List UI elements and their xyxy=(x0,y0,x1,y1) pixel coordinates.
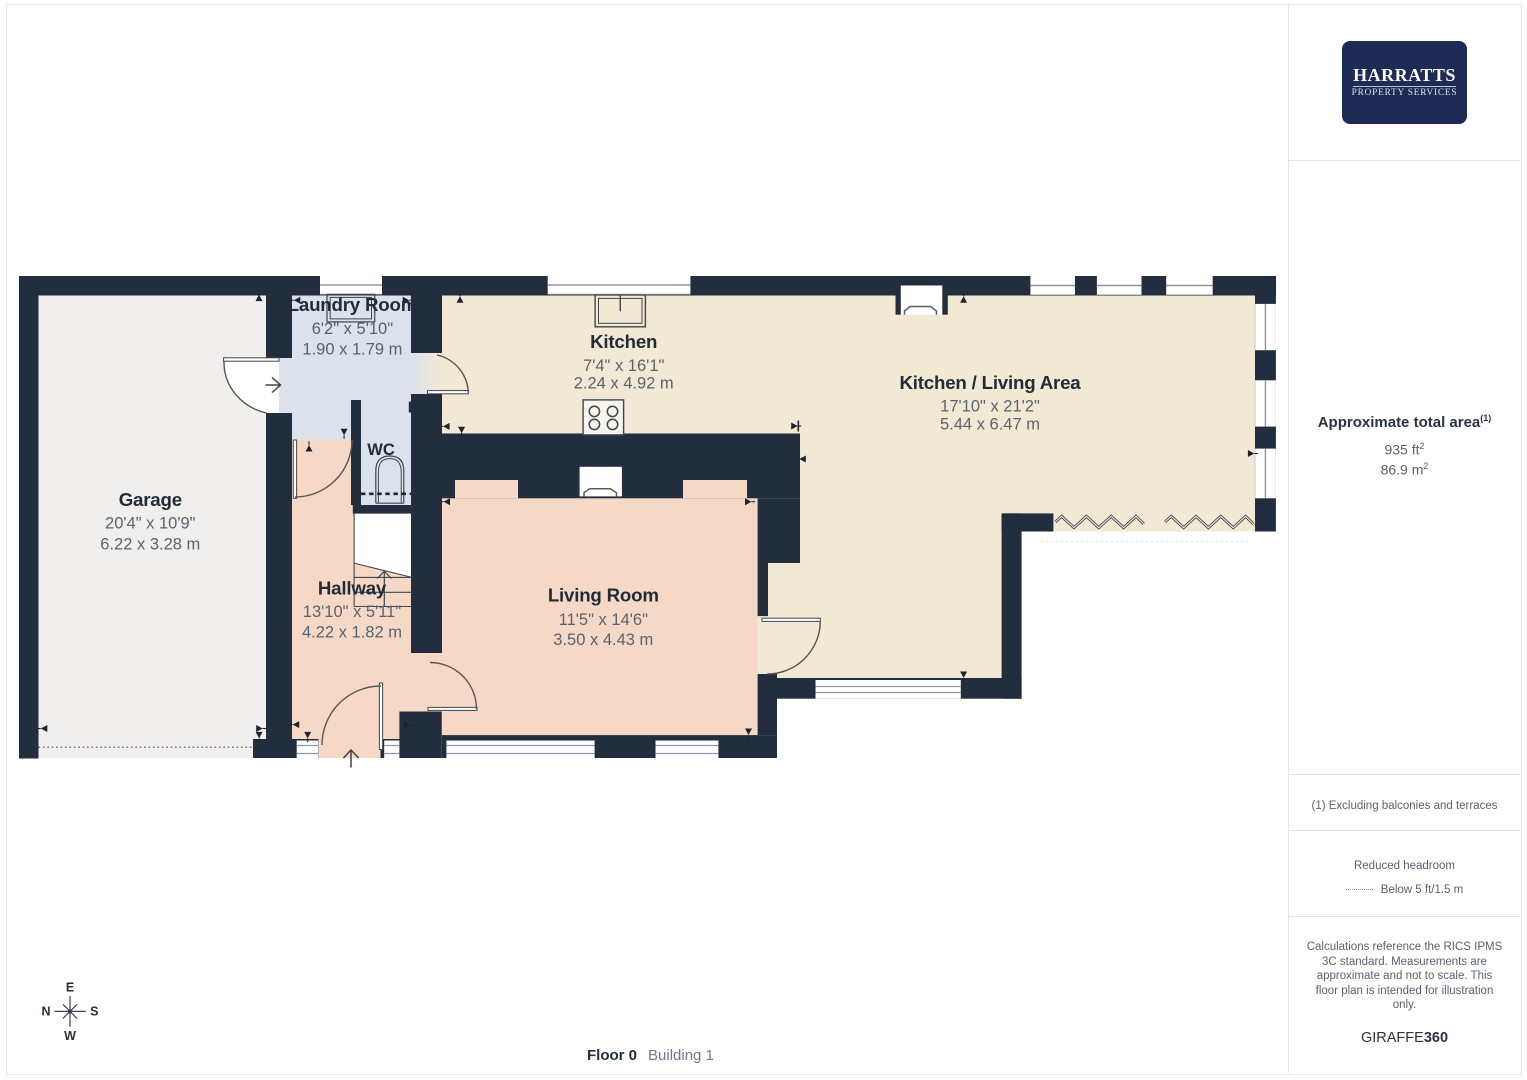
svg-text:7'4" x 16'1": 7'4" x 16'1" xyxy=(583,357,664,375)
svg-text:WC: WC xyxy=(367,441,395,459)
svg-text:Hallway: Hallway xyxy=(318,578,387,599)
svg-text:Garage: Garage xyxy=(119,489,182,510)
svg-text:Laundry Room: Laundry Room xyxy=(288,294,417,315)
svg-text:Kitchen / Living Area: Kitchen / Living Area xyxy=(900,372,1082,393)
svg-text:S: S xyxy=(90,1005,98,1019)
svg-text:E: E xyxy=(66,981,74,995)
svg-text:N: N xyxy=(41,1005,50,1019)
svg-text:1.90 x 1.79 m: 1.90 x 1.79 m xyxy=(302,341,402,359)
svg-text:5.44 x 6.47 m: 5.44 x 6.47 m xyxy=(940,416,1040,434)
svg-text:6'2" x 5'10": 6'2" x 5'10" xyxy=(312,320,393,338)
svg-text:13'10" x 5'11": 13'10" x 5'11" xyxy=(303,603,402,621)
svg-text:2.24 x 4.92 m: 2.24 x 4.92 m xyxy=(574,375,674,393)
svg-text:6.22 x 3.28 m: 6.22 x 3.28 m xyxy=(100,536,200,554)
svg-text:17'10" x 21'2": 17'10" x 21'2" xyxy=(940,398,1040,416)
svg-text:20'4" x 10'9": 20'4" x 10'9" xyxy=(105,515,196,533)
svg-text:Kitchen: Kitchen xyxy=(590,331,657,352)
svg-text:4.22 x 1.82 m: 4.22 x 1.82 m xyxy=(302,624,402,642)
svg-text:3.50 x 4.43 m: 3.50 x 4.43 m xyxy=(553,631,653,649)
svg-text:W: W xyxy=(64,1029,76,1043)
svg-text:Living Room: Living Room xyxy=(548,585,659,606)
svg-text:11'5" x 14'6": 11'5" x 14'6" xyxy=(559,611,648,629)
